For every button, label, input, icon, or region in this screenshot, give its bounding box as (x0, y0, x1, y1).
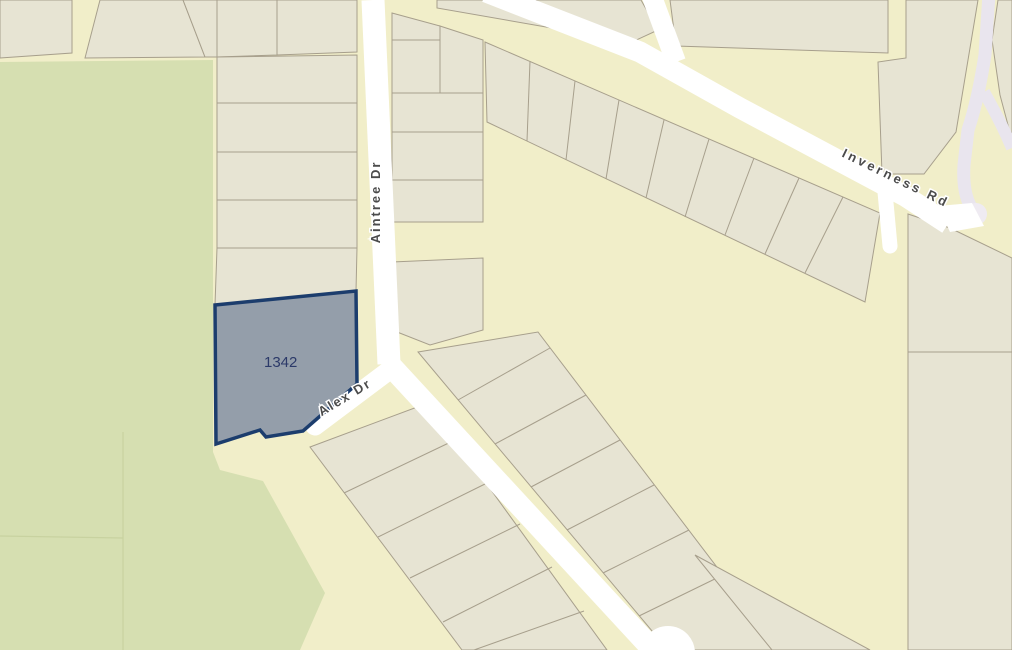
map-canvas[interactable]: 1342 Aintree Dr Alex Dr Inverness Rd (0, 0, 1012, 650)
parcel-column-west-of-aintree[interactable] (215, 0, 357, 305)
road-label-aintree-dr: Aintree Dr (368, 161, 383, 244)
parcel[interactable] (217, 200, 357, 248)
parcel[interactable] (217, 55, 357, 103)
parcel-block-right-edge[interactable] (908, 214, 1012, 650)
parcel[interactable] (392, 258, 483, 345)
parcel[interactable] (0, 0, 72, 58)
selected-parcel-number: 1342 (264, 354, 297, 371)
parcel[interactable] (217, 0, 277, 57)
parcel[interactable] (392, 180, 483, 222)
parcel[interactable] (277, 0, 357, 55)
parcel[interactable] (217, 103, 357, 152)
parcel[interactable] (670, 0, 888, 53)
parcel[interactable] (217, 152, 357, 200)
parcel[interactable] (908, 352, 1012, 650)
road-stub-dead-end[interactable] (885, 192, 890, 246)
parcel-block-top-left[interactable] (0, 0, 217, 58)
parcel[interactable] (392, 93, 483, 132)
parcel-column-east-of-aintree[interactable] (392, 13, 483, 345)
parcel[interactable] (392, 40, 440, 93)
parcel[interactable] (392, 132, 483, 180)
